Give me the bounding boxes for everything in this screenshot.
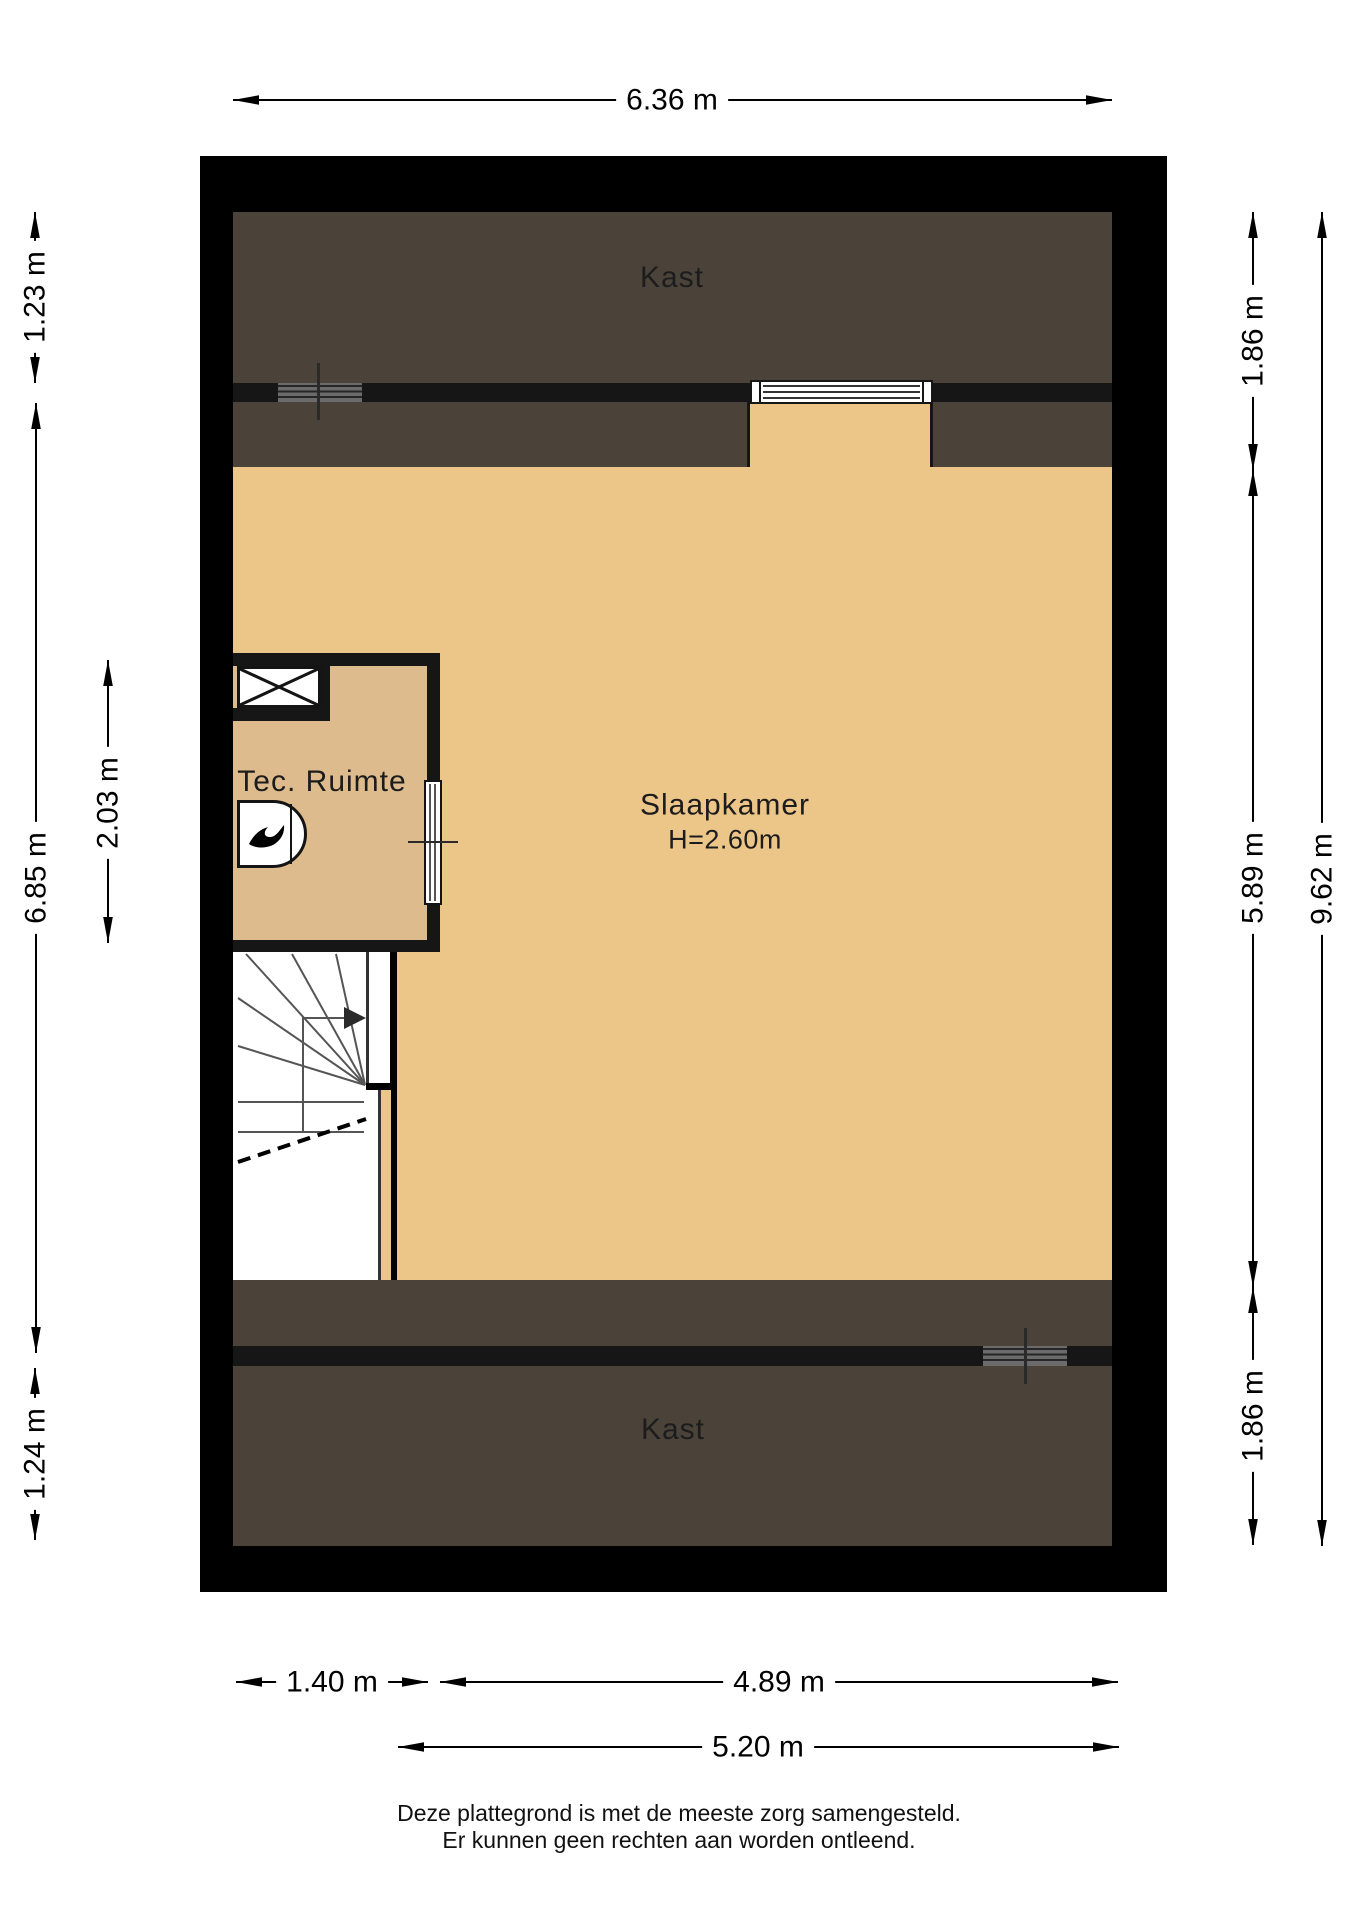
- stair-half-wall: [381, 1090, 391, 1280]
- dim-label-left-top: 1.23 m: [17, 241, 53, 353]
- boiler-panel-line: [290, 804, 292, 864]
- stairwell: [233, 952, 397, 1280]
- room-label-kast-top: Kast: [640, 261, 704, 295]
- tec-wall-right-upper: [427, 666, 440, 780]
- dim-label-left-bottom: 1.24 m: [17, 1398, 53, 1510]
- dim-label-right-total: 9.62 m: [1304, 823, 1340, 935]
- dim-label-right-bottom: 1.86 m: [1235, 1360, 1271, 1472]
- dim-label-tec-height: 2.03 m: [90, 747, 126, 859]
- tec-wall-bottom: [233, 940, 440, 952]
- flame-icon: [246, 816, 288, 854]
- window-frame-cap: [922, 382, 931, 402]
- knee-wall-bottom: [233, 1346, 1112, 1366]
- stair-wall-connector: [366, 1083, 397, 1090]
- room-label-slaapkamer: Slaapkamer H=2.60m: [640, 789, 810, 856]
- dim-label-bottom-left: 1.40 m: [276, 1664, 388, 1700]
- shaft-x-box: [237, 666, 321, 708]
- knee-wall-top: [233, 383, 1112, 402]
- stair-wall-right-upper: [390, 952, 397, 1090]
- room-label-tec-ruimte: Tec. Ruimte: [237, 765, 406, 799]
- window-frame-cap: [752, 382, 761, 402]
- dim-label-bottom-right: 4.89 m: [723, 1664, 835, 1700]
- dim-label-right-top: 1.86 m: [1235, 285, 1271, 397]
- window-glazing-lines: [763, 385, 920, 399]
- stair-rail-line-upper: [366, 952, 369, 1085]
- window: [750, 380, 933, 404]
- disclaimer-line-1: Deze plattegrond is met de meeste zorg s…: [0, 1800, 1358, 1827]
- dim-label-top-width: 6.36 m: [616, 82, 728, 118]
- disclaimer: Deze plattegrond is met de meeste zorg s…: [0, 1800, 1358, 1854]
- vent-hatch-bottom-tick: [1024, 1328, 1027, 1384]
- vent-hatch-top: [278, 383, 362, 402]
- room-label-kast-bottom: Kast: [641, 1413, 705, 1447]
- boiler-icon: [237, 800, 307, 868]
- room-name: Slaapkamer: [640, 789, 810, 822]
- stair-wall-right-lower: [391, 1090, 397, 1280]
- dim-label-right-middle: 5.89 m: [1235, 822, 1271, 934]
- window-recess: [747, 402, 933, 467]
- shaft-wall-bottom: [233, 708, 330, 721]
- dim-label-left-middle: 6.85 m: [18, 822, 54, 934]
- disclaimer-line-2: Er kunnen geen rechten aan worden ontlee…: [0, 1827, 1358, 1854]
- floor-plan-page: Kast Slaapkamer H=2.60m Tec. Ruimte Kast: [0, 0, 1358, 1920]
- tec-door-tick: [408, 841, 458, 843]
- room-ceiling-height: H=2.60m: [640, 825, 810, 856]
- dim-label-bottom-total: 5.20 m: [702, 1729, 814, 1765]
- tec-wall-top: [233, 653, 440, 666]
- vent-hatch-top-tick: [317, 363, 320, 420]
